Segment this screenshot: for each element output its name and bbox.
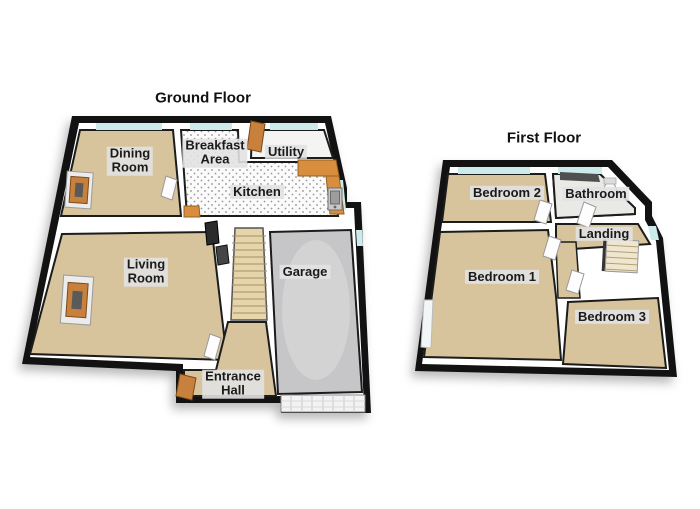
first-floor-title: First Floor	[507, 130, 581, 147]
dining-fireplace-icon	[65, 171, 93, 209]
breakfast-area-label: Breakfast Area	[182, 139, 247, 168]
garage-door	[281, 395, 365, 412]
living-room-label: Living Room	[124, 258, 168, 287]
sink-icon	[328, 188, 342, 210]
ground-staircase	[231, 228, 268, 320]
dining-room-label: Dining Room	[107, 147, 153, 176]
floorplan-canvas: Ground Floor First Floor Dining Room Bre…	[0, 0, 700, 509]
bedroom1-label: Bedroom 1	[465, 270, 539, 284]
front-door-icon	[176, 374, 196, 400]
living-fireplace-icon	[60, 275, 93, 325]
first-floor-plan	[415, 160, 677, 377]
garage-floor-highlight	[282, 240, 350, 380]
landing-label: Landing	[576, 227, 633, 241]
bedroom1-floor	[424, 230, 561, 360]
utility-label: Utility	[265, 145, 307, 159]
ground-floor-title: Ground Floor	[155, 90, 251, 107]
bedroom2-label: Bedroom 2	[470, 186, 544, 200]
bathroom-label: Bathroom	[562, 187, 629, 201]
entrance-hall-label: Entrance Hall	[202, 370, 264, 399]
kitchen-label: Kitchen	[230, 185, 284, 199]
floorplan-image	[0, 0, 700, 509]
garage-label: Garage	[280, 265, 331, 279]
living-room-floor	[30, 232, 227, 360]
bedroom3-label: Bedroom 3	[575, 310, 649, 324]
first-staircase	[603, 239, 639, 273]
